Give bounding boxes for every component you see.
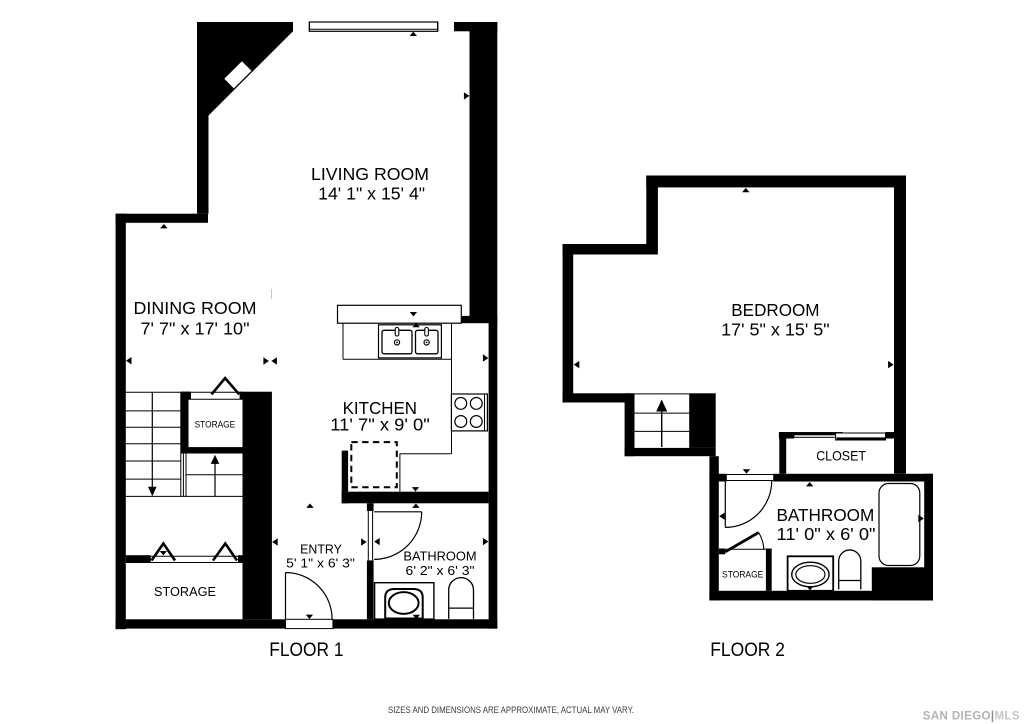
svg-text:FLOOR 2: FLOOR 2 bbox=[710, 640, 785, 661]
svg-text:BATHROOM: BATHROOM bbox=[776, 505, 874, 525]
svg-text:ENTRY: ENTRY bbox=[300, 541, 342, 556]
svg-text:STORAGE: STORAGE bbox=[722, 570, 763, 581]
svg-text:6' 2" x 6' 3": 6' 2" x 6' 3" bbox=[406, 563, 475, 578]
svg-text:SIZES AND DIMENSIONS ARE APPRO: SIZES AND DIMENSIONS ARE APPROXIMATE, AC… bbox=[388, 705, 634, 716]
svg-text:BATHROOM: BATHROOM bbox=[403, 549, 476, 564]
svg-text:11' 7" x 9' 0": 11' 7" x 9' 0" bbox=[330, 414, 430, 434]
svg-text:17' 5" x 15' 5": 17' 5" x 15' 5" bbox=[721, 320, 830, 340]
svg-text:FLOOR 1: FLOOR 1 bbox=[269, 640, 343, 661]
svg-text:STORAGE: STORAGE bbox=[154, 584, 216, 599]
svg-text:STORAGE: STORAGE bbox=[195, 419, 236, 430]
svg-text:LIVING ROOM: LIVING ROOM bbox=[311, 164, 429, 184]
svg-text:CLOSET: CLOSET bbox=[816, 449, 866, 464]
svg-text:5' 1" x 6' 3": 5' 1" x 6' 3" bbox=[286, 556, 355, 571]
svg-text:SAN DIEGO|MLS: SAN DIEGO|MLS bbox=[923, 711, 1020, 723]
svg-text:11' 0" x 6' 0": 11' 0" x 6' 0" bbox=[777, 524, 876, 544]
svg-text:14' 1" x 15' 4": 14' 1" x 15' 4" bbox=[318, 184, 425, 204]
svg-text:BEDROOM: BEDROOM bbox=[731, 300, 819, 320]
svg-text:7' 7" x 17' 10": 7' 7" x 17' 10" bbox=[141, 319, 250, 339]
svg-text:DINING ROOM: DINING ROOM bbox=[134, 298, 257, 318]
